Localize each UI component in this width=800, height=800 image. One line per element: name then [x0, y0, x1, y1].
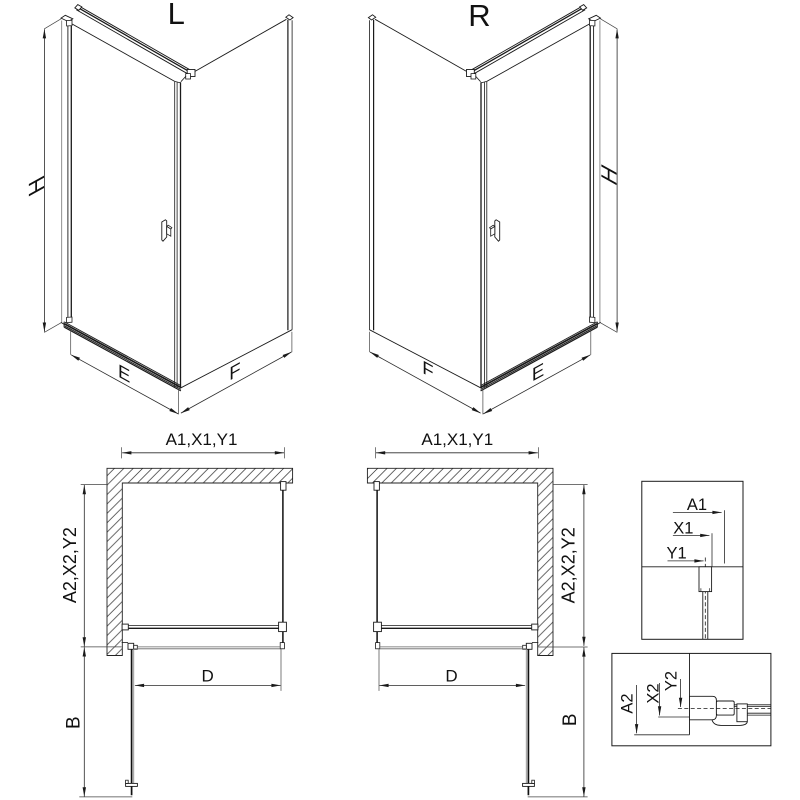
svg-text:A1,X1,Y1: A1,X1,Y1 — [421, 430, 493, 449]
svg-text:Y2: Y2 — [663, 671, 681, 691]
svg-text:X1: X1 — [673, 520, 693, 538]
svg-text:L: L — [168, 0, 185, 31]
svg-text:D: D — [445, 666, 457, 685]
svg-text:X2: X2 — [644, 683, 662, 703]
svg-text:B: B — [560, 713, 581, 726]
svg-text:A1: A1 — [687, 496, 707, 514]
svg-text:A2,X2,Y2: A2,X2,Y2 — [559, 527, 579, 603]
svg-text:B: B — [63, 716, 84, 729]
svg-text:A1,X1,Y1: A1,X1,Y1 — [166, 430, 238, 449]
svg-text:A2: A2 — [619, 693, 637, 713]
svg-text:D: D — [201, 666, 213, 685]
svg-text:R: R — [468, 0, 490, 33]
svg-text:A2,X2,Y2: A2,X2,Y2 — [60, 527, 80, 603]
svg-text:Y1: Y1 — [667, 545, 687, 563]
